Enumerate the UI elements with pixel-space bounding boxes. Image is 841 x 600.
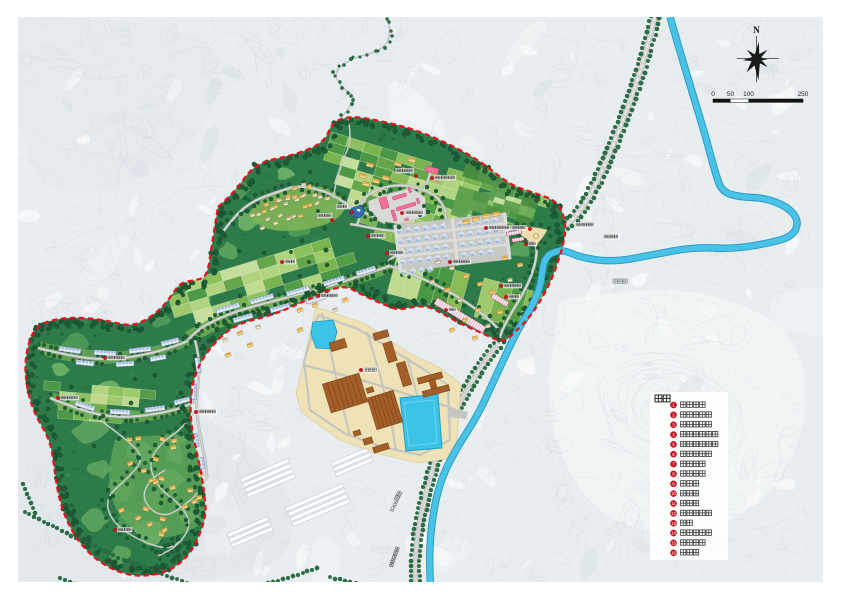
svg-text:13: 13 [671,521,676,526]
svg-text:10: 10 [671,491,676,496]
svg-text:15: 15 [671,541,676,546]
svg-text:100: 100 [743,91,754,98]
svg-text:0: 0 [711,91,715,98]
svg-text:50: 50 [727,91,735,98]
svg-text:11: 11 [671,501,676,506]
svg-text:12: 12 [671,511,676,516]
svg-text:16: 16 [671,550,676,555]
svg-text:N: N [753,25,760,35]
svg-text:14: 14 [671,531,676,536]
svg-text:250: 250 [798,91,809,98]
